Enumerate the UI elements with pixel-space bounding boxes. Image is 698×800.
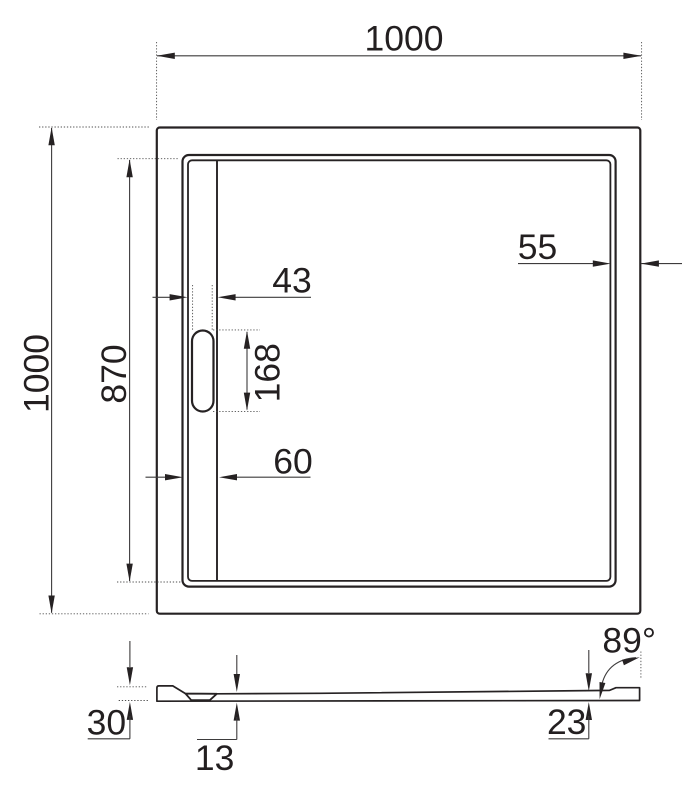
- svg-text:1000: 1000: [365, 19, 444, 59]
- svg-text:13: 13: [195, 738, 235, 778]
- svg-text:43: 43: [272, 261, 312, 301]
- svg-text:23: 23: [547, 702, 587, 742]
- svg-text:89°: 89°: [602, 621, 656, 661]
- svg-text:168: 168: [247, 343, 287, 402]
- svg-text:30: 30: [87, 703, 127, 743]
- svg-text:60: 60: [273, 442, 313, 482]
- svg-text:1000: 1000: [16, 334, 56, 413]
- svg-text:55: 55: [518, 227, 558, 267]
- svg-text:870: 870: [94, 344, 134, 403]
